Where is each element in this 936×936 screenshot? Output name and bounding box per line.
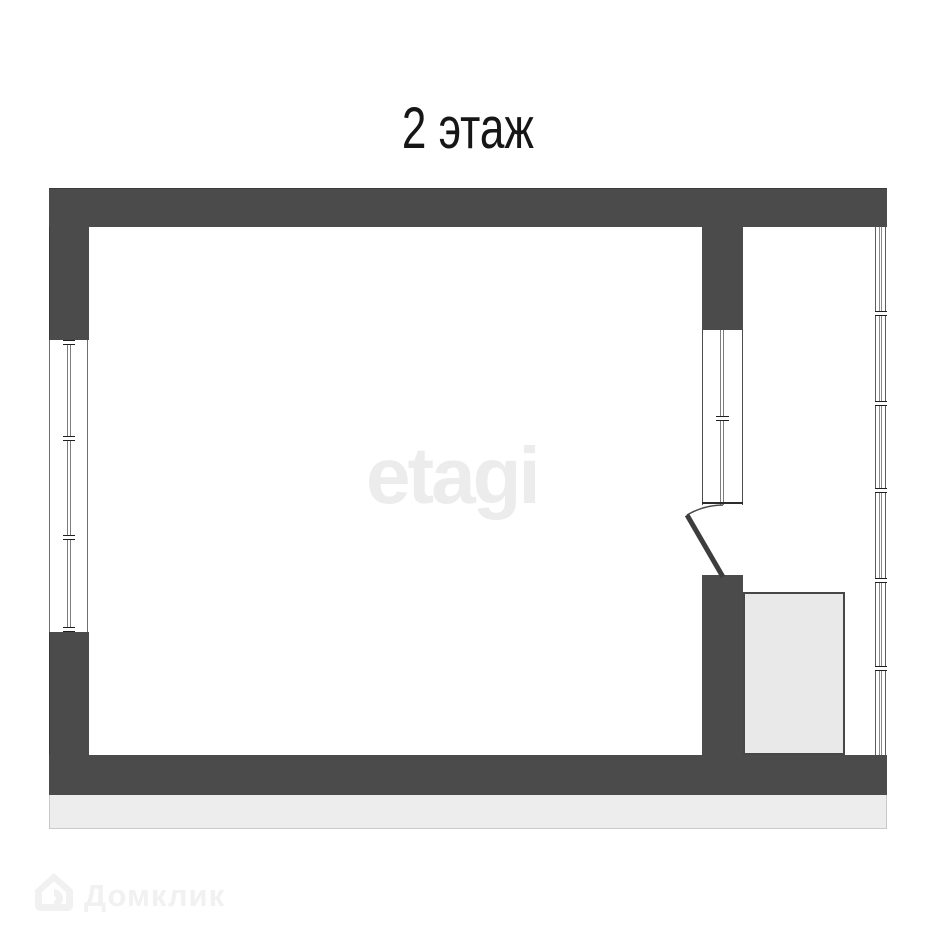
partition-bottom-edge [702, 502, 743, 504]
etagi-watermark: etagi [366, 436, 538, 516]
glazing-pane-tick [875, 488, 887, 493]
window-frame-line [87, 340, 88, 632]
wall-top [49, 188, 887, 227]
door-swing-arc [687, 505, 723, 515]
wall-bottom [49, 755, 887, 795]
domclick-house-icon [32, 870, 76, 914]
window-frame-line [49, 340, 50, 632]
glazing-pane-tick [875, 401, 887, 406]
floor-plan-page: 2 этаж [0, 0, 936, 936]
window-pane-tick [63, 436, 75, 441]
partition-pane-tick [716, 416, 729, 421]
glazing-pane-tick [875, 311, 887, 316]
door-leaf [687, 515, 723, 577]
partition-frame-line [742, 330, 743, 505]
wall-interior-upper [702, 227, 743, 330]
page-title: 2 этаж [0, 100, 936, 158]
wall-left-lower [49, 632, 89, 755]
glazed-wall-right [875, 227, 887, 755]
wall-left-upper [49, 227, 89, 340]
glazing-pane-tick [875, 578, 887, 583]
partition-window-interior [702, 330, 743, 505]
shaft-box [743, 592, 845, 755]
floor-label: 2 этаж [402, 100, 534, 158]
window-glazing-line [70, 340, 71, 632]
domclick-brand-label: Домклик [84, 870, 225, 911]
glazing-pane-tick [875, 666, 887, 671]
base-strip [49, 795, 887, 829]
window-pane-tick [63, 340, 75, 345]
window-glazing-line [67, 340, 68, 632]
domclick-watermark: Домклик [32, 870, 225, 914]
window-left-wall [49, 340, 89, 632]
wall-interior-lower [702, 575, 743, 755]
window-pane-tick [63, 535, 75, 540]
partition-frame-line [702, 330, 703, 505]
window-pane-tick [63, 627, 75, 632]
